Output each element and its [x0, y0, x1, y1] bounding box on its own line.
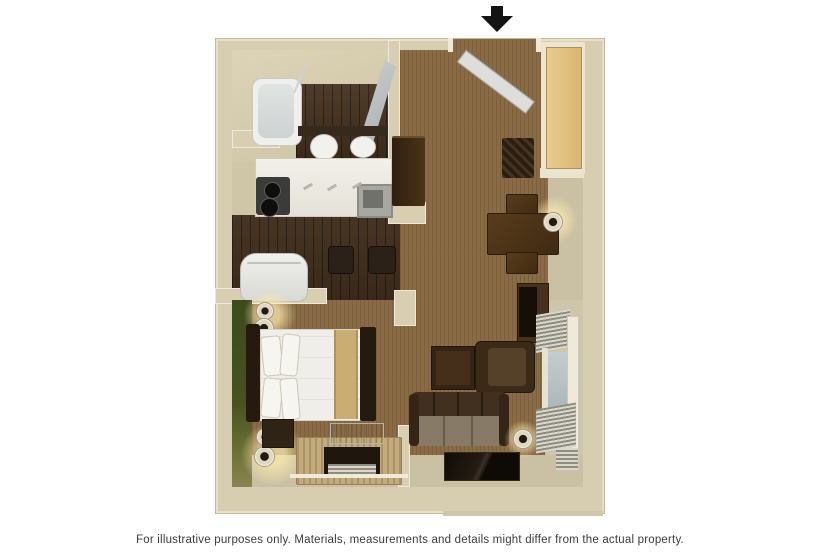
dining-table-lamp [543, 212, 563, 232]
bed-footboard [360, 327, 376, 421]
bathtub-basin [258, 84, 294, 138]
dining-chair-2 [506, 252, 538, 274]
sink-basin [363, 190, 383, 208]
entrance-arrow-icon [478, 6, 516, 33]
sofa-arm-left [409, 394, 419, 446]
desk-white-edge [290, 474, 408, 478]
armchair [475, 341, 535, 393]
bathroom-sink [350, 136, 376, 158]
bed-runner [334, 330, 358, 419]
bottom-wall-step [443, 511, 603, 516]
floor-lamp [513, 429, 533, 449]
toilet [310, 134, 338, 160]
end-table-top [436, 351, 470, 385]
bed-headboard [246, 324, 260, 422]
disclaimer-caption: For illustrative purposes only. Material… [0, 534, 820, 546]
window-blinds-bottom [536, 402, 576, 453]
closet-door [546, 47, 582, 169]
window-blinds-top [536, 309, 570, 353]
sofa-seat [417, 416, 501, 446]
dresser [392, 136, 425, 206]
pillow-4 [279, 377, 301, 420]
stove-burner-2 [260, 198, 279, 217]
kitchen-side-wall [232, 162, 255, 215]
nightstand [262, 419, 294, 448]
end-table [431, 346, 475, 390]
divider-stub-top [394, 290, 416, 326]
vanity-mirror [298, 126, 388, 136]
stove-burner-1 [264, 182, 281, 199]
floorplan-image: For illustrative purposes only. Material… [0, 0, 820, 560]
coffee-table [444, 452, 520, 481]
television [519, 287, 537, 337]
wall-sconce-4 [254, 446, 275, 467]
pillow-2 [279, 333, 301, 376]
kitchen-sink [357, 184, 393, 218]
luggage-rack [502, 138, 534, 178]
refrigerator-lid-line [247, 262, 301, 264]
bar-stool-2 [368, 246, 396, 274]
bar-stool-1 [328, 246, 354, 274]
window-blinds-lower [556, 448, 578, 470]
door-frame-left [448, 38, 453, 52]
ac-unit [330, 423, 384, 444]
armchair-cushion [488, 348, 526, 386]
